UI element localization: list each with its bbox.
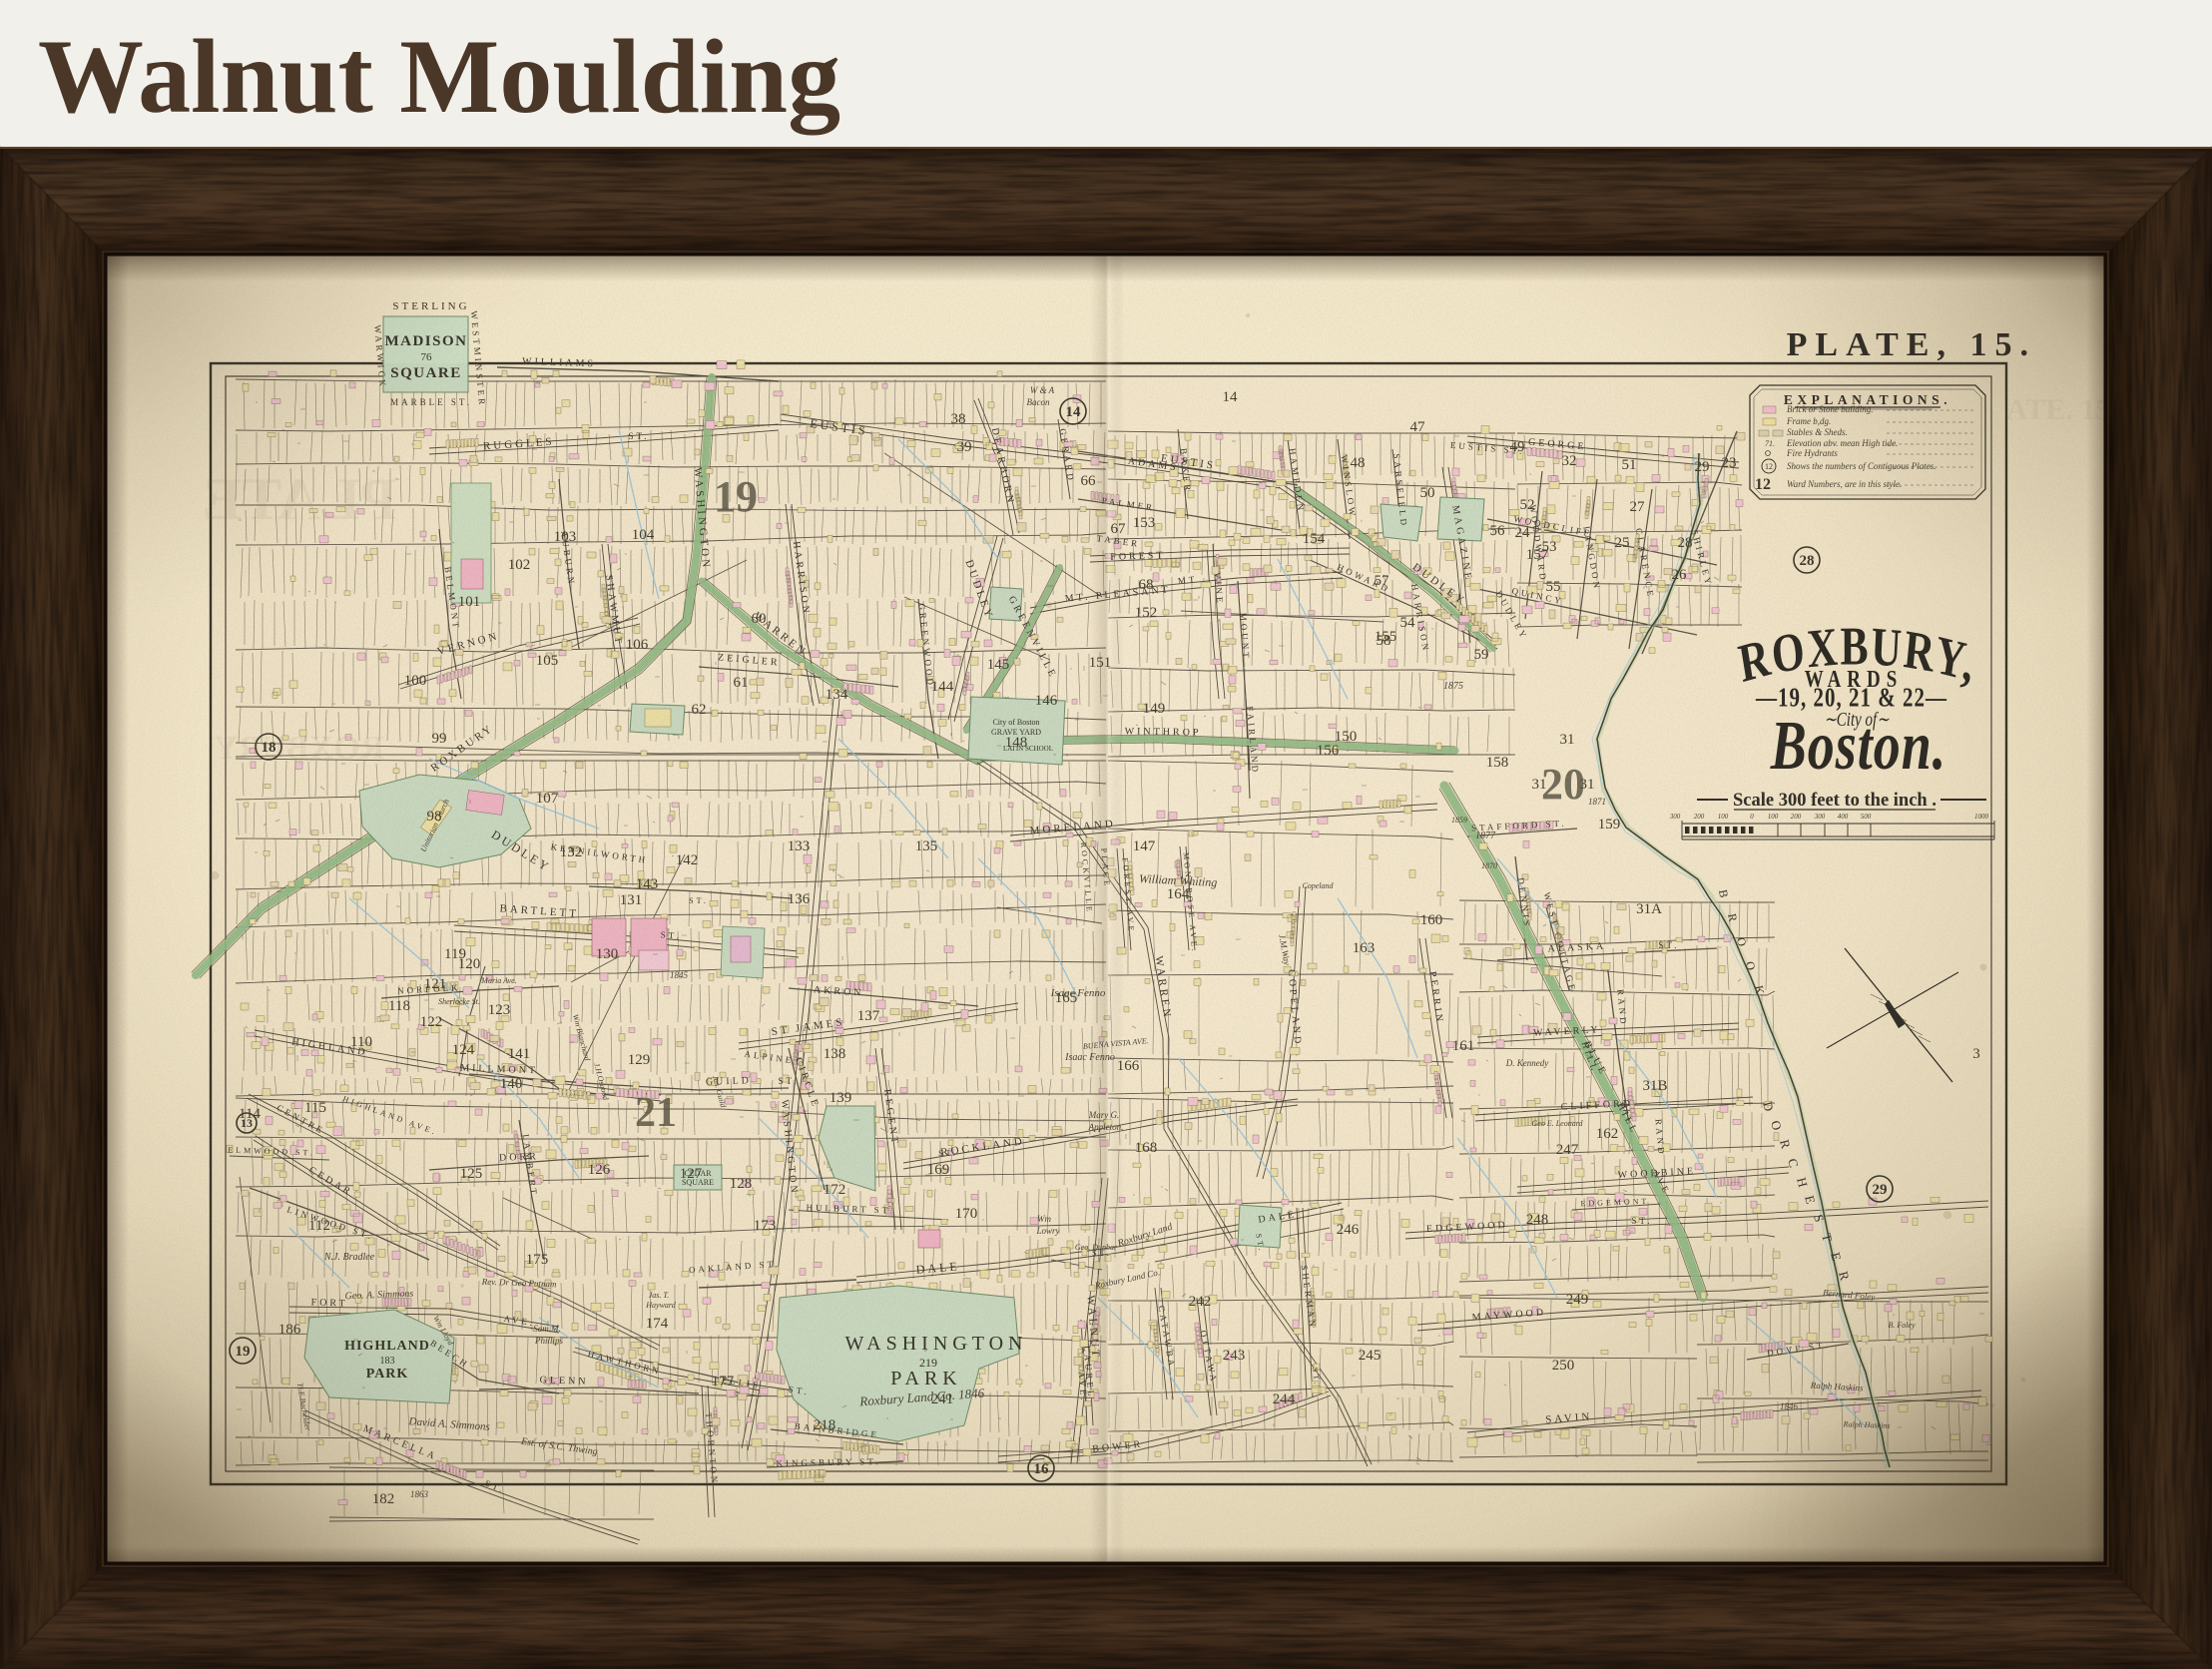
svg-text:Walnut Moulding: Walnut Moulding [38, 18, 840, 135]
